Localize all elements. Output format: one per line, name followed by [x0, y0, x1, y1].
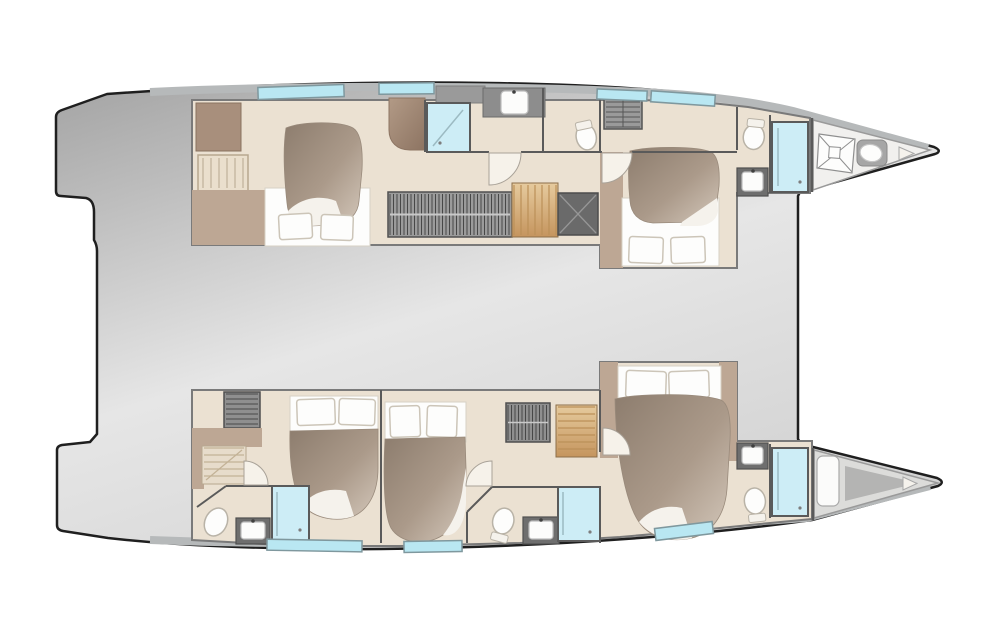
hull-window [597, 89, 647, 101]
faucet [751, 444, 755, 448]
pillow [278, 213, 312, 240]
faucet [512, 90, 516, 94]
shower-drain [588, 530, 591, 533]
bed-platform-aft-port [192, 190, 267, 245]
catamaran-floorplan [0, 0, 1000, 640]
shower-drain [438, 141, 441, 144]
shower-drain [798, 506, 801, 509]
cabinet-strip [192, 428, 262, 447]
shower-tray-drain [829, 147, 841, 159]
faucet [539, 518, 543, 522]
faucet [251, 519, 255, 523]
desk-unit [196, 103, 241, 151]
toilet-tank [748, 513, 766, 523]
washbasin [529, 521, 553, 539]
hull-window [258, 85, 344, 100]
bow-compartments [812, 118, 938, 520]
locker-slats [226, 394, 258, 424]
washbasin [742, 172, 763, 191]
pillow [426, 405, 457, 437]
shower-drain [798, 180, 801, 183]
washbasin [501, 91, 528, 114]
pillow [389, 405, 420, 437]
shower-drain [298, 528, 301, 531]
shelf-unit [198, 155, 248, 191]
hull-window [404, 540, 462, 552]
bow-hatch [817, 456, 839, 506]
toilet-tank [747, 118, 765, 128]
vanity-seat [389, 98, 425, 150]
locker-aft [224, 392, 260, 428]
hull-window [267, 539, 362, 552]
pillow [629, 236, 664, 263]
pillow [671, 236, 706, 263]
washbasin [742, 447, 763, 464]
hull-window [379, 83, 434, 94]
bottom-hull-interior [192, 362, 812, 546]
washbasin [241, 522, 265, 539]
pillow [339, 398, 376, 425]
floorplan-drawing [0, 0, 1000, 640]
pillow [321, 214, 354, 240]
galley-counter-strip [436, 86, 485, 103]
faucet [751, 169, 755, 173]
pillow [297, 398, 336, 425]
shower-stbd-mid [558, 487, 600, 541]
